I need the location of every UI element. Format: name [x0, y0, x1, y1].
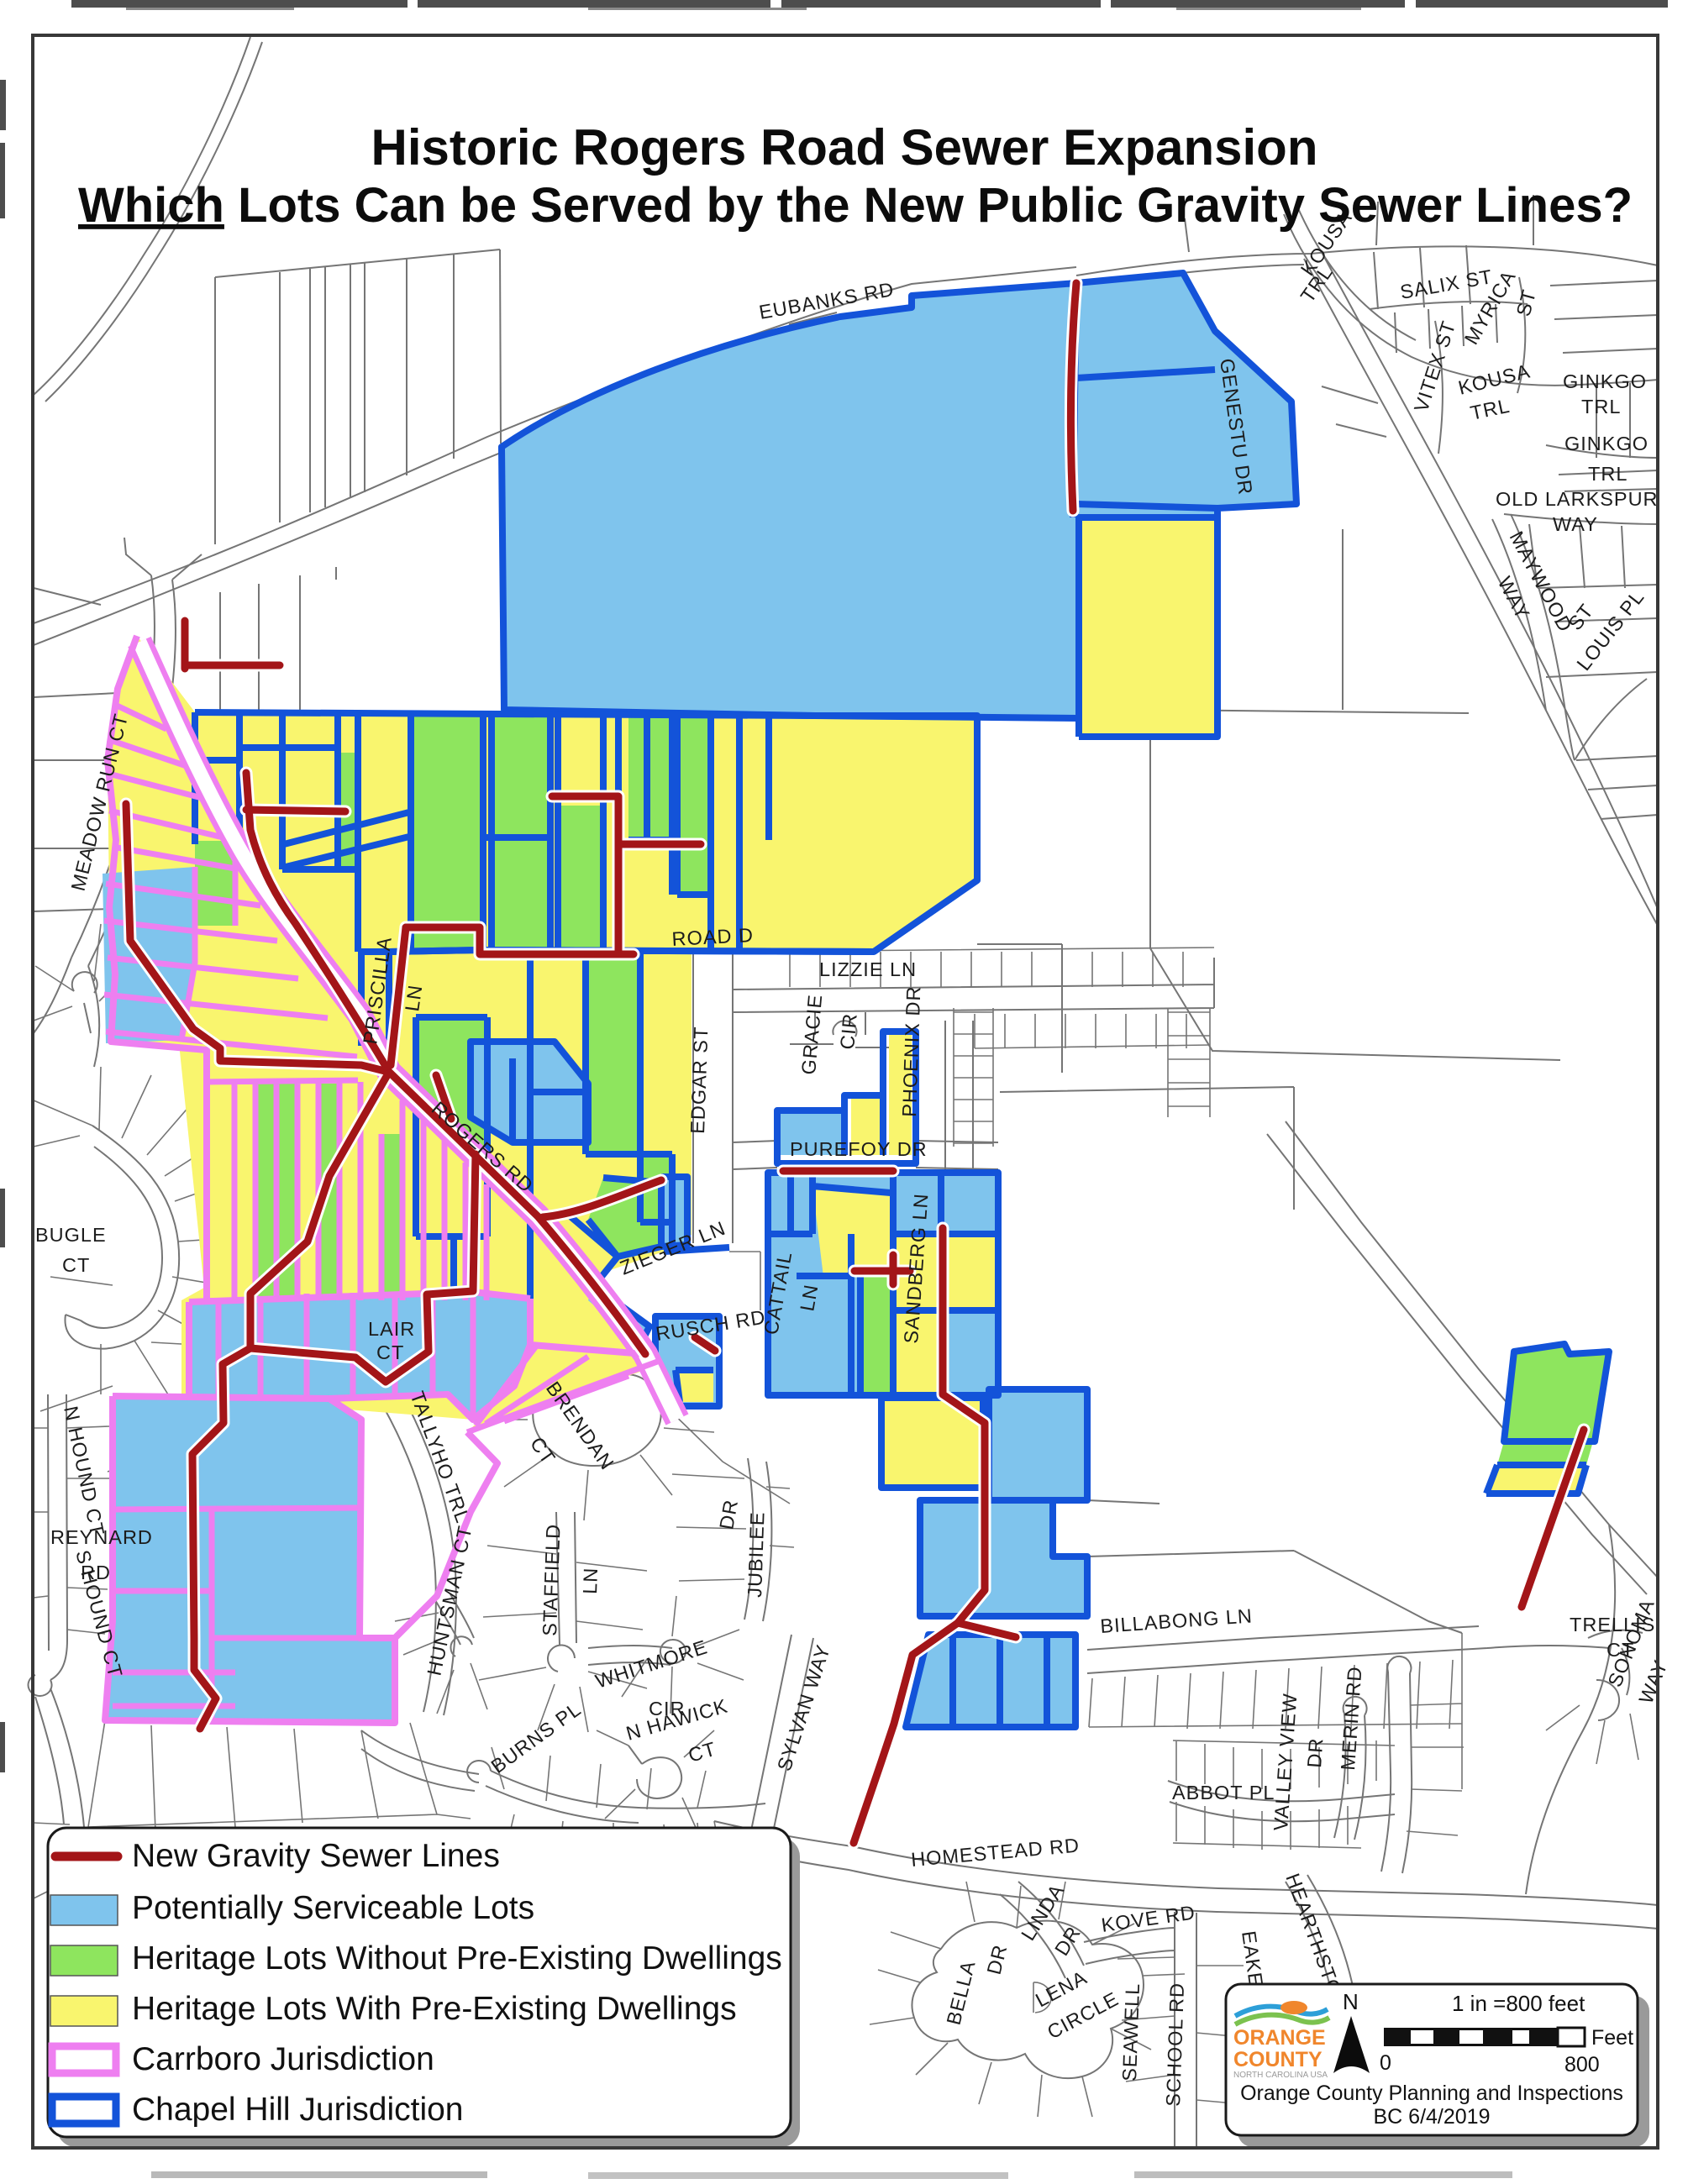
svg-text:Which Lots Can be Served by th: Which Lots Can be Served by the New Publ… — [78, 178, 1633, 233]
svg-text:Historic Rogers Road Sewer Exp: Historic Rogers Road Sewer Expansion — [371, 119, 1318, 176]
svg-text:ROAD D: ROAD D — [671, 924, 755, 950]
svg-text:BUGLE: BUGLE — [35, 1224, 107, 1246]
svg-text:STAFFIELD: STAFFIELD — [539, 1523, 565, 1636]
svg-text:LN: LN — [401, 983, 426, 1012]
svg-text:SEAWELL: SEAWELL — [1118, 1982, 1144, 2082]
svg-text:REYNARD: REYNARD — [50, 1526, 153, 1548]
svg-text:TRL: TRL — [1588, 463, 1628, 485]
svg-text:LN: LN — [579, 1567, 602, 1594]
svg-text:Carrboro Jurisdiction: Carrboro Jurisdiction — [132, 2041, 434, 2077]
svg-text:JUBILEE: JUBILEE — [744, 1511, 769, 1598]
svg-text:LIZZIE LN: LIZZIE LN — [819, 958, 917, 980]
svg-text:Orange County Planning and Ins: Orange County Planning and Inspections — [1240, 2082, 1623, 2105]
svg-text:EDGAR ST: EDGAR ST — [686, 1026, 712, 1134]
svg-text:N: N — [1343, 1989, 1359, 2014]
svg-text:CT: CT — [62, 1254, 90, 1276]
svg-text:PHOENIX DR: PHOENIX DR — [898, 985, 924, 1117]
svg-text:SCHOOL RD: SCHOOL RD — [1162, 1982, 1188, 2108]
svg-text:PUREFOY DR: PUREFOY DR — [790, 1138, 928, 1160]
svg-text:LN: LN — [796, 1283, 822, 1313]
svg-text:GINKGO: GINKGO — [1563, 370, 1647, 392]
svg-text:WAY: WAY — [1553, 513, 1598, 535]
svg-text:TRL: TRL — [1581, 396, 1621, 417]
svg-text:Heritage Lots With Pre-Existin: Heritage Lots With Pre-Existing Dwelling… — [132, 1991, 737, 2027]
svg-text:Feet: Feet — [1591, 2026, 1633, 2050]
svg-text:GINKGO: GINKGO — [1564, 433, 1649, 454]
svg-text:COUNTY: COUNTY — [1233, 2048, 1323, 2071]
svg-text:1 in =800 feet: 1 in =800 feet — [1452, 1991, 1585, 2016]
svg-text:CIR: CIR — [836, 1012, 861, 1051]
svg-text:OLD LARKSPUR: OLD LARKSPUR — [1496, 488, 1659, 510]
svg-text:CT: CT — [376, 1341, 404, 1363]
svg-text:Potentially Serviceable Lots: Potentially Serviceable Lots — [132, 1890, 534, 1926]
svg-text:ORANGE: ORANGE — [1233, 2026, 1326, 2050]
svg-text:0: 0 — [1380, 2051, 1391, 2075]
svg-text:NORTH CAROLINA USA: NORTH CAROLINA USA — [1233, 2071, 1328, 2080]
svg-text:LAIR: LAIR — [368, 1318, 415, 1340]
svg-text:ABBOT PL: ABBOT PL — [1172, 1782, 1275, 1803]
svg-text:DR: DR — [1303, 1737, 1327, 1769]
svg-text:Chapel Hill Jurisdiction: Chapel Hill Jurisdiction — [132, 2092, 464, 2128]
svg-text:BC 6/4/2019: BC 6/4/2019 — [1374, 2105, 1491, 2129]
svg-text:800: 800 — [1564, 2053, 1600, 2076]
svg-text:Heritage Lots Without Pre-Exis: Heritage Lots Without Pre-Existing Dwell… — [132, 1940, 782, 1977]
svg-text:New Gravity Sewer Lines: New Gravity Sewer Lines — [132, 1838, 500, 1874]
